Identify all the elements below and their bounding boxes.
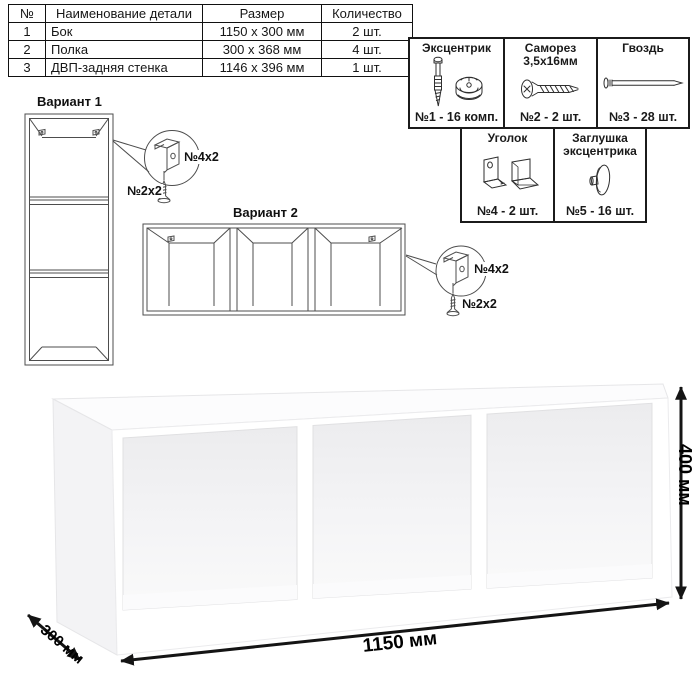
- hardware-legend: Эксцентрик: [408, 37, 692, 225]
- detail-screw-icon: [447, 294, 459, 316]
- part-name: Бок: [46, 23, 203, 41]
- hardware-title: Заглушка эксцентрика: [563, 129, 637, 159]
- parts-table: № Наименование детали Размер Количество …: [8, 4, 413, 77]
- hardware-title: Уголок: [488, 129, 528, 145]
- variant-1-bracket-label: №4х2: [183, 150, 220, 164]
- hardware-title: Гвоздь: [622, 39, 664, 55]
- eccentric-cam-icon: [453, 75, 485, 105]
- part-name: ДВП-задняя стенка: [46, 59, 203, 77]
- part-qty: 4 шт.: [322, 41, 413, 59]
- hardware-count: №3 - 28 шт.: [609, 110, 677, 127]
- hardware-cell-screw: Саморез 3,5х16мм №2 - 2 шт.: [503, 37, 598, 129]
- part-num: 1: [9, 23, 46, 41]
- callout-leader: [113, 140, 149, 172]
- screw-icon: [519, 77, 583, 101]
- hardware-cell-corner-bracket: Уголок №4 - 2 шт.: [460, 127, 555, 223]
- table-row: 3 ДВП-задняя стенка 1146 x 396 мм 1 шт.: [9, 59, 413, 77]
- cam-cap-icon: [587, 161, 613, 201]
- table-row: 1 Бок 1150 x 300 мм 2 шт.: [9, 23, 413, 41]
- part-num: 3: [9, 59, 46, 77]
- variant-1-screw-label: №2х2: [126, 184, 163, 198]
- header-name: Наименование детали: [46, 5, 203, 23]
- header-qty: Количество: [322, 5, 413, 23]
- hardware-cell-nail: Гвоздь №3 - 28 шт.: [596, 37, 690, 129]
- wall-bracket-mark: [168, 236, 174, 242]
- hardware-count: №5 - 16 шт.: [566, 204, 634, 221]
- variant-1-title: Вариант 1: [37, 94, 102, 109]
- compartment-opening: [487, 403, 652, 588]
- assembly-instruction-sheet: № Наименование детали Размер Количество …: [0, 0, 700, 690]
- hardware-title: Эксцентрик: [422, 39, 491, 55]
- callout-leader: [406, 255, 437, 275]
- part-size: 1150 x 300 мм: [203, 23, 322, 41]
- corner-bracket-detail-icon: [155, 139, 179, 173]
- variant-2-bracket-label: №4х2: [473, 262, 510, 276]
- corner-bracket-icon: [476, 152, 540, 198]
- part-qty: 2 шт.: [322, 23, 413, 41]
- part-size: 300 x 368 мм: [203, 41, 322, 59]
- corner-bracket-detail-icon: [444, 252, 468, 286]
- hardware-cell-eccentric: Эксцентрик: [408, 37, 505, 129]
- wall-bracket-mark: [369, 236, 375, 242]
- height-dimension-label: 400 мм: [674, 444, 695, 506]
- eccentric-bolt-icon: [428, 56, 448, 110]
- parts-table-header-row: № Наименование детали Размер Количество: [9, 5, 413, 23]
- part-num: 2: [9, 41, 46, 59]
- hardware-cell-cam-cap: Заглушка эксцентрика №5 - 16 шт.: [553, 127, 647, 223]
- part-qty: 1 шт.: [322, 59, 413, 77]
- shelf-left-face: [53, 399, 117, 655]
- nail-icon: [602, 76, 684, 90]
- compartment-opening: [123, 427, 297, 610]
- part-size: 1146 x 396 мм: [203, 59, 322, 77]
- hardware-count: №2 - 2 шт.: [520, 110, 581, 127]
- part-name: Полка: [46, 41, 203, 59]
- hardware-count: №1 - 16 комп.: [415, 110, 498, 127]
- table-row: 2 Полка 300 x 368 мм 4 шт.: [9, 41, 413, 59]
- hardware-title: Саморез 3,5х16мм: [523, 39, 577, 69]
- variant-2-screw-label: №2х2: [461, 297, 498, 311]
- header-num: №: [9, 5, 46, 23]
- compartment-opening: [313, 415, 471, 598]
- header-size: Размер: [203, 5, 322, 23]
